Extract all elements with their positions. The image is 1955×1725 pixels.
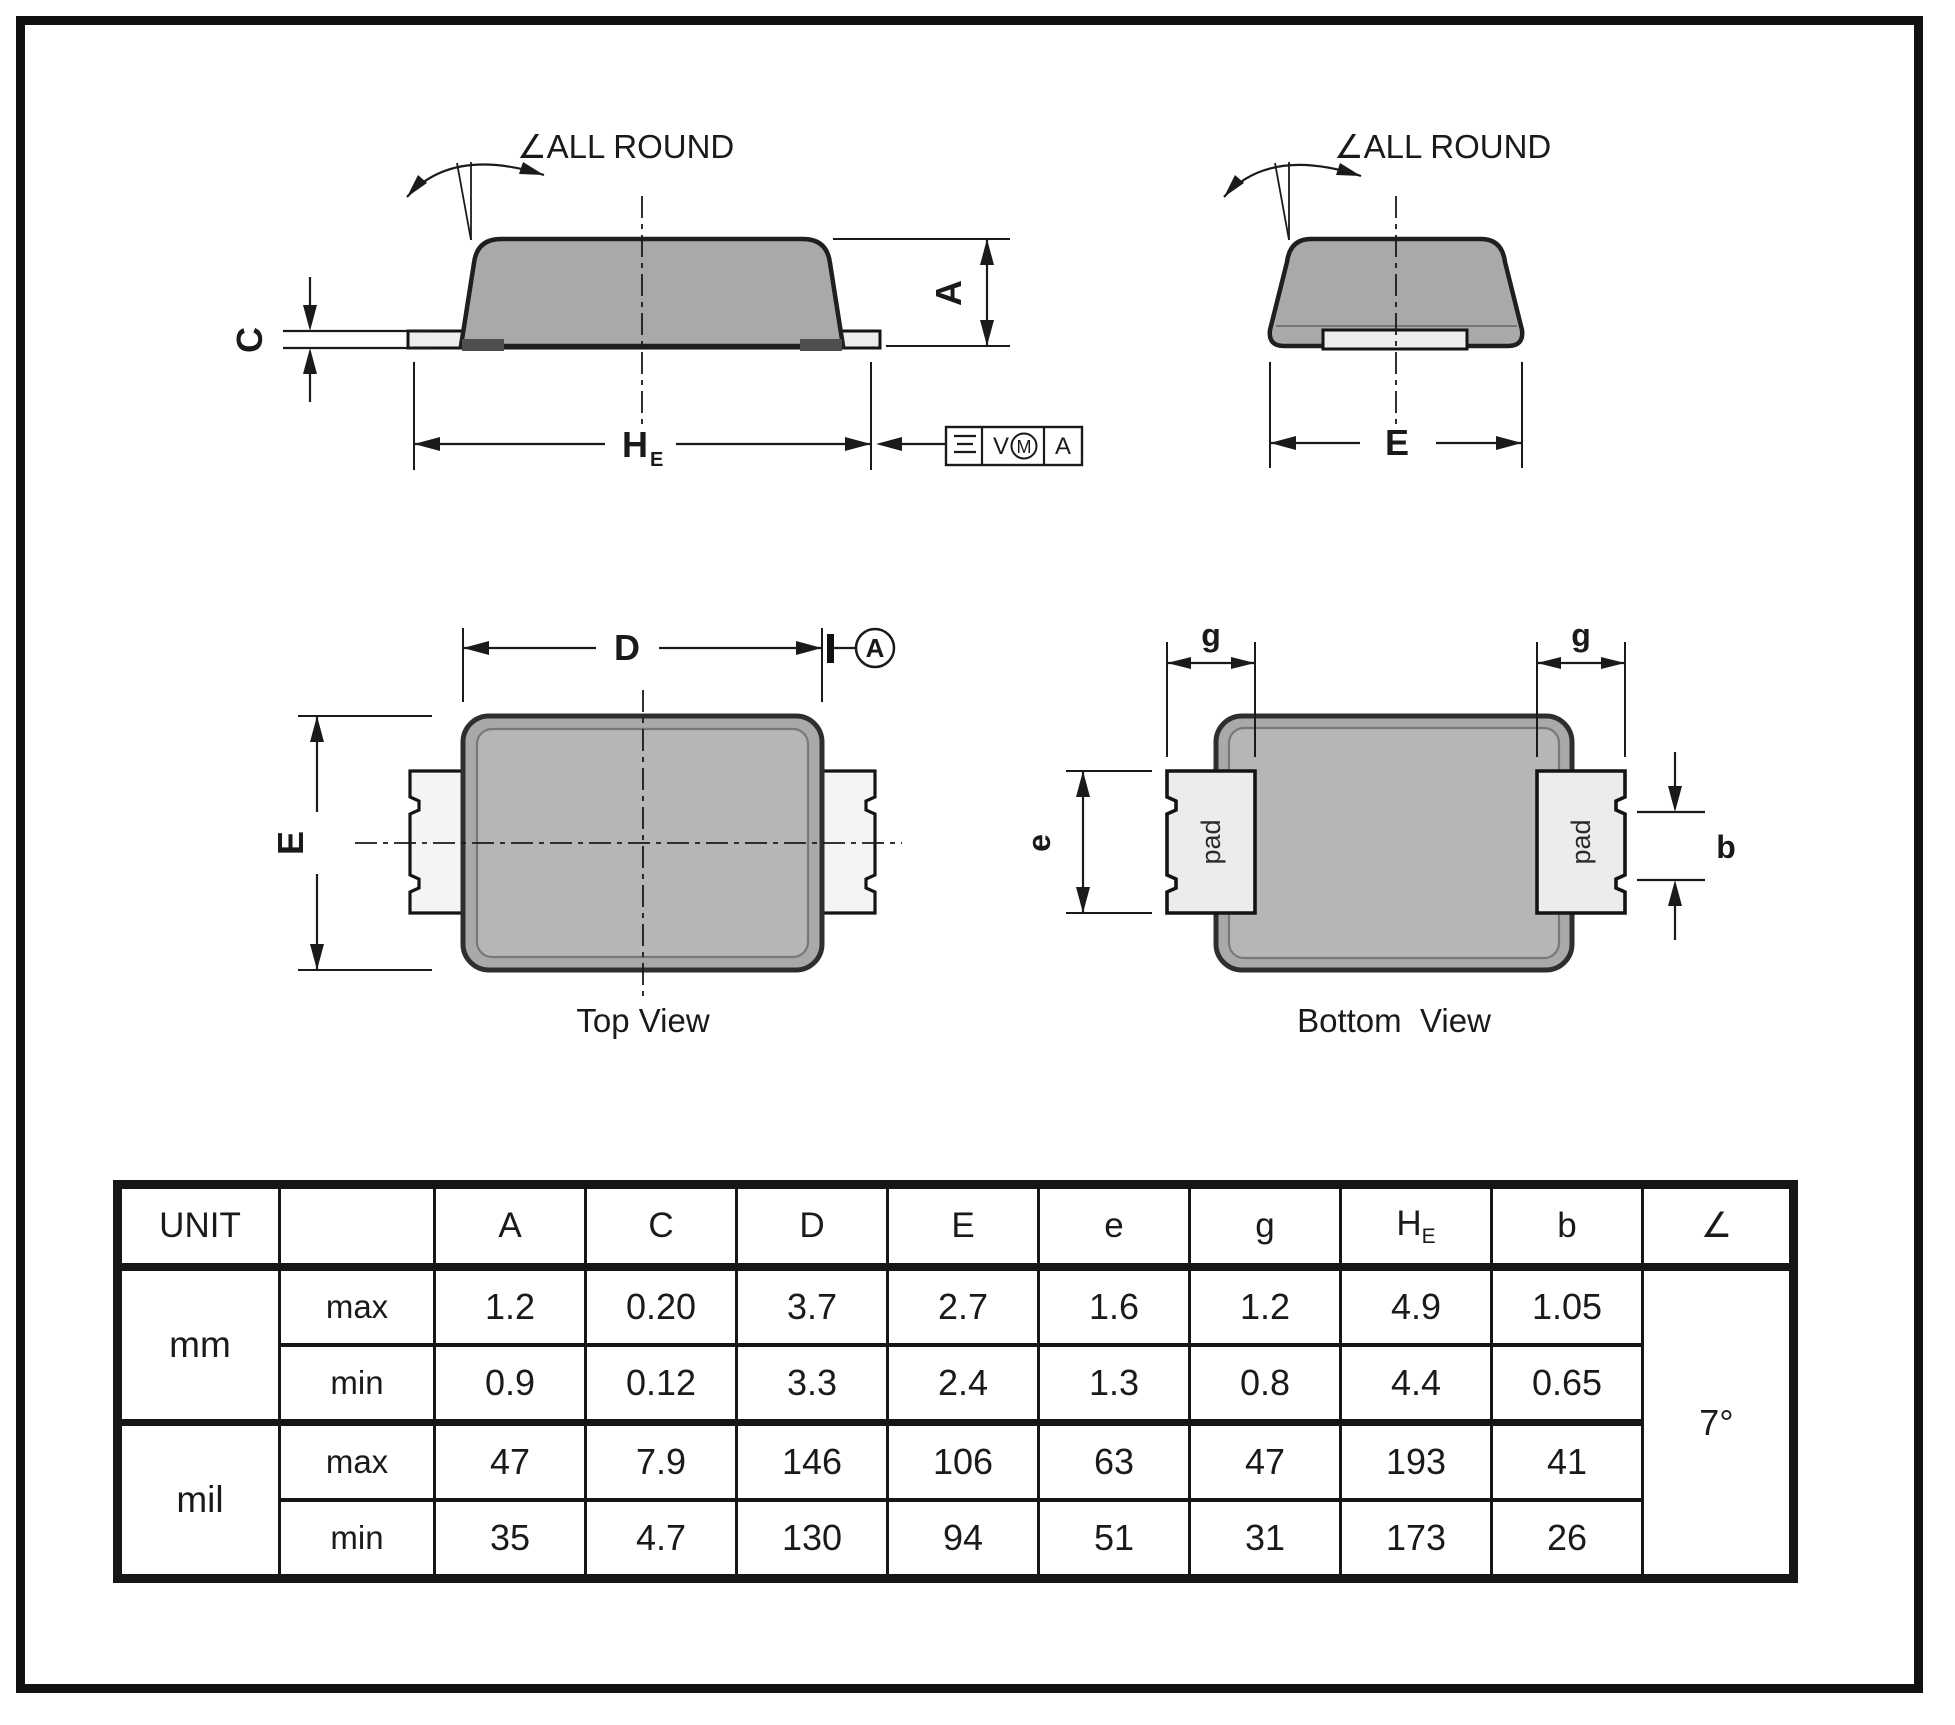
- unit-header: UNIT: [118, 1185, 280, 1268]
- pad-left-label: pad: [1196, 819, 1226, 864]
- col-header-a: A: [435, 1185, 586, 1268]
- limit-cell: min: [280, 1345, 435, 1423]
- limit-column-header: [280, 1185, 435, 1268]
- limit-cell: min: [280, 1500, 435, 1579]
- col-header-e-lower: e: [1039, 1185, 1190, 1268]
- table-cell: 106: [888, 1423, 1039, 1501]
- limit-cell: max: [280, 1267, 435, 1345]
- top-lead-right: [822, 771, 875, 913]
- table-cell: 1.3: [1039, 1345, 1190, 1423]
- dim-a-label: A: [928, 280, 969, 306]
- col-header-he: HE: [1341, 1185, 1492, 1268]
- table-cell: 0.65: [1492, 1345, 1643, 1423]
- table-cell: 0.9: [435, 1345, 586, 1423]
- table-cell: 1.6: [1039, 1267, 1190, 1345]
- top-view: D A E Top View: [270, 627, 902, 1039]
- dim-e-small-label: e: [1021, 834, 1057, 852]
- table-cell: 2.7: [888, 1267, 1039, 1345]
- table-cell: 173: [1341, 1500, 1492, 1579]
- col-header-d: D: [737, 1185, 888, 1268]
- table-cell: 0.12: [586, 1345, 737, 1423]
- table-cell: 63: [1039, 1423, 1190, 1501]
- dim-b-label: b: [1716, 829, 1736, 865]
- datum-a-label: A: [866, 633, 885, 663]
- side-angle-callout: ∠ALL ROUND: [407, 128, 734, 240]
- dim-d-label: D: [614, 627, 640, 668]
- table-cell: 1.2: [1190, 1267, 1341, 1345]
- arc-arrow-left: [407, 175, 427, 197]
- table-cell: 47: [1190, 1423, 1341, 1501]
- datum-bar-icon: [827, 634, 834, 663]
- top-view-caption: Top View: [576, 1002, 709, 1039]
- table-cell: 7.9: [586, 1423, 737, 1501]
- table-cell: 41: [1492, 1423, 1643, 1501]
- table-cell: 1.05: [1492, 1267, 1643, 1345]
- side-view: ∠ALL ROUND C H E: [229, 128, 1082, 471]
- table-cell: 35: [435, 1500, 586, 1579]
- pad-right-label: pad: [1566, 819, 1596, 864]
- dim-g-left-label: g: [1201, 617, 1221, 653]
- datasheet-page: ∠ALL ROUND C H E: [0, 0, 1955, 1725]
- table-cell: 3.3: [737, 1345, 888, 1423]
- feature-control-frame: V M A: [876, 427, 1082, 465]
- dimension-c: C: [229, 277, 430, 402]
- unit-mil: mil: [118, 1423, 280, 1579]
- table-cell: 4.9: [1341, 1267, 1492, 1345]
- datum-a-flag: A: [827, 629, 894, 667]
- table-cell: 0.8: [1190, 1345, 1341, 1423]
- bottom-body-inner: [1229, 728, 1559, 958]
- side-body: [461, 239, 843, 346]
- end-angle-callout: ∠ALL ROUND: [1224, 128, 1551, 240]
- table-cell: 0.20: [586, 1267, 737, 1345]
- dim-c-label: C: [229, 327, 270, 353]
- end-pad: [1323, 330, 1467, 349]
- bottom-view: pad pad g g e: [1021, 617, 1736, 1039]
- fcf-datum-ref: A: [1055, 433, 1071, 460]
- angle-value-cell: 7°: [1643, 1267, 1794, 1579]
- top-lead-left: [410, 771, 463, 913]
- table-cell: 31: [1190, 1500, 1341, 1579]
- table-cell: 4.4: [1341, 1345, 1492, 1423]
- package-outline-drawing: ∠ALL ROUND C H E: [0, 0, 1955, 1170]
- dimension-table: UNIT A C D E e g HE b ∠ mm max 1.2 0.20 …: [113, 1180, 1798, 1583]
- col-header-b: b: [1492, 1185, 1643, 1268]
- end-angle-label: ∠ALL ROUND: [1334, 128, 1551, 165]
- fcf-modifier: M: [1017, 437, 1032, 457]
- col-header-e-upper: E: [888, 1185, 1039, 1268]
- col-header-angle: ∠: [1643, 1185, 1794, 1268]
- table-cell: 2.4: [888, 1345, 1039, 1423]
- dimension-e-end: E: [1270, 362, 1522, 468]
- dimension-b: b: [1637, 752, 1736, 940]
- table-cell: 26: [1492, 1500, 1643, 1579]
- dim-e-top-label: E: [270, 831, 311, 855]
- col-header-g: g: [1190, 1185, 1341, 1268]
- table-cell: 47: [435, 1423, 586, 1501]
- table-cell: 146: [737, 1423, 888, 1501]
- dim-g-right-label: g: [1571, 617, 1591, 653]
- dimension-he: H E: [414, 362, 871, 471]
- side-angle-label: ∠ALL ROUND: [517, 128, 734, 165]
- table-cell: 3.7: [737, 1267, 888, 1345]
- table-cell: 1.2: [435, 1267, 586, 1345]
- table-cell: 130: [737, 1500, 888, 1579]
- dim-e-end-label: E: [1385, 422, 1409, 463]
- limit-cell: max: [280, 1423, 435, 1501]
- col-header-c: C: [586, 1185, 737, 1268]
- table-cell: 94: [888, 1500, 1039, 1579]
- dim-he-label: H: [622, 424, 648, 465]
- side-foot-left: [462, 339, 504, 351]
- dimension-e-small: e: [1021, 771, 1152, 913]
- unit-mm: mm: [118, 1267, 280, 1423]
- table-cell: 51: [1039, 1500, 1190, 1579]
- bottom-view-caption: Bottom View: [1297, 1002, 1491, 1039]
- end-view: ∠ALL ROUND E: [1224, 128, 1551, 468]
- dim-he-subscript: E: [650, 449, 663, 471]
- table-cell: 4.7: [586, 1500, 737, 1579]
- table-cell: 193: [1341, 1423, 1492, 1501]
- side-foot-right: [800, 339, 842, 351]
- fcf-tolerance: V: [993, 433, 1009, 460]
